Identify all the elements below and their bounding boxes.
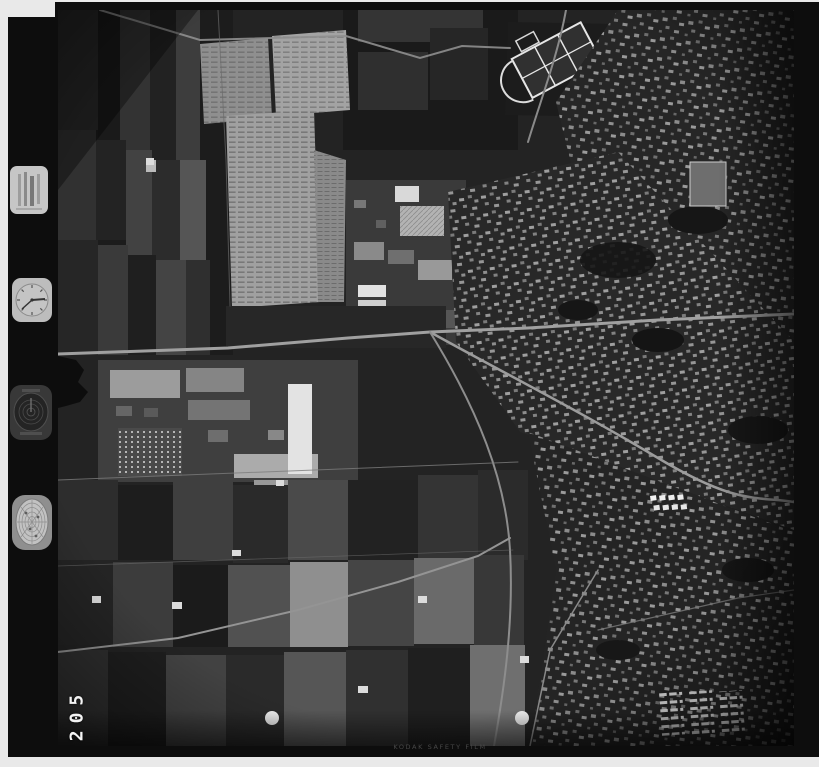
- aerial-scene: [58, 10, 794, 746]
- level-gauge-dial: [12, 495, 52, 554]
- clock-graphic: [12, 278, 52, 322]
- film-frame: 205 KODAK SAFETY FILM: [8, 2, 819, 757]
- vignette: [58, 10, 794, 746]
- aerial-photo-print: 205 KODAK SAFETY FILM: [0, 0, 819, 767]
- aerial-photograph: [58, 10, 794, 746]
- frame-number: 205: [62, 674, 92, 754]
- frame-number-text: 205: [67, 687, 88, 741]
- altimeter-graphic: [10, 385, 52, 440]
- data-plate: [10, 166, 48, 218]
- clock-dial: [12, 278, 52, 326]
- level-gauge-graphic: [12, 495, 52, 550]
- data-plate-graphic: [10, 166, 48, 214]
- film-corner-notch: [8, 2, 55, 17]
- altimeter-dial: [10, 385, 52, 444]
- film-caption: KODAK SAFETY FILM: [370, 743, 510, 751]
